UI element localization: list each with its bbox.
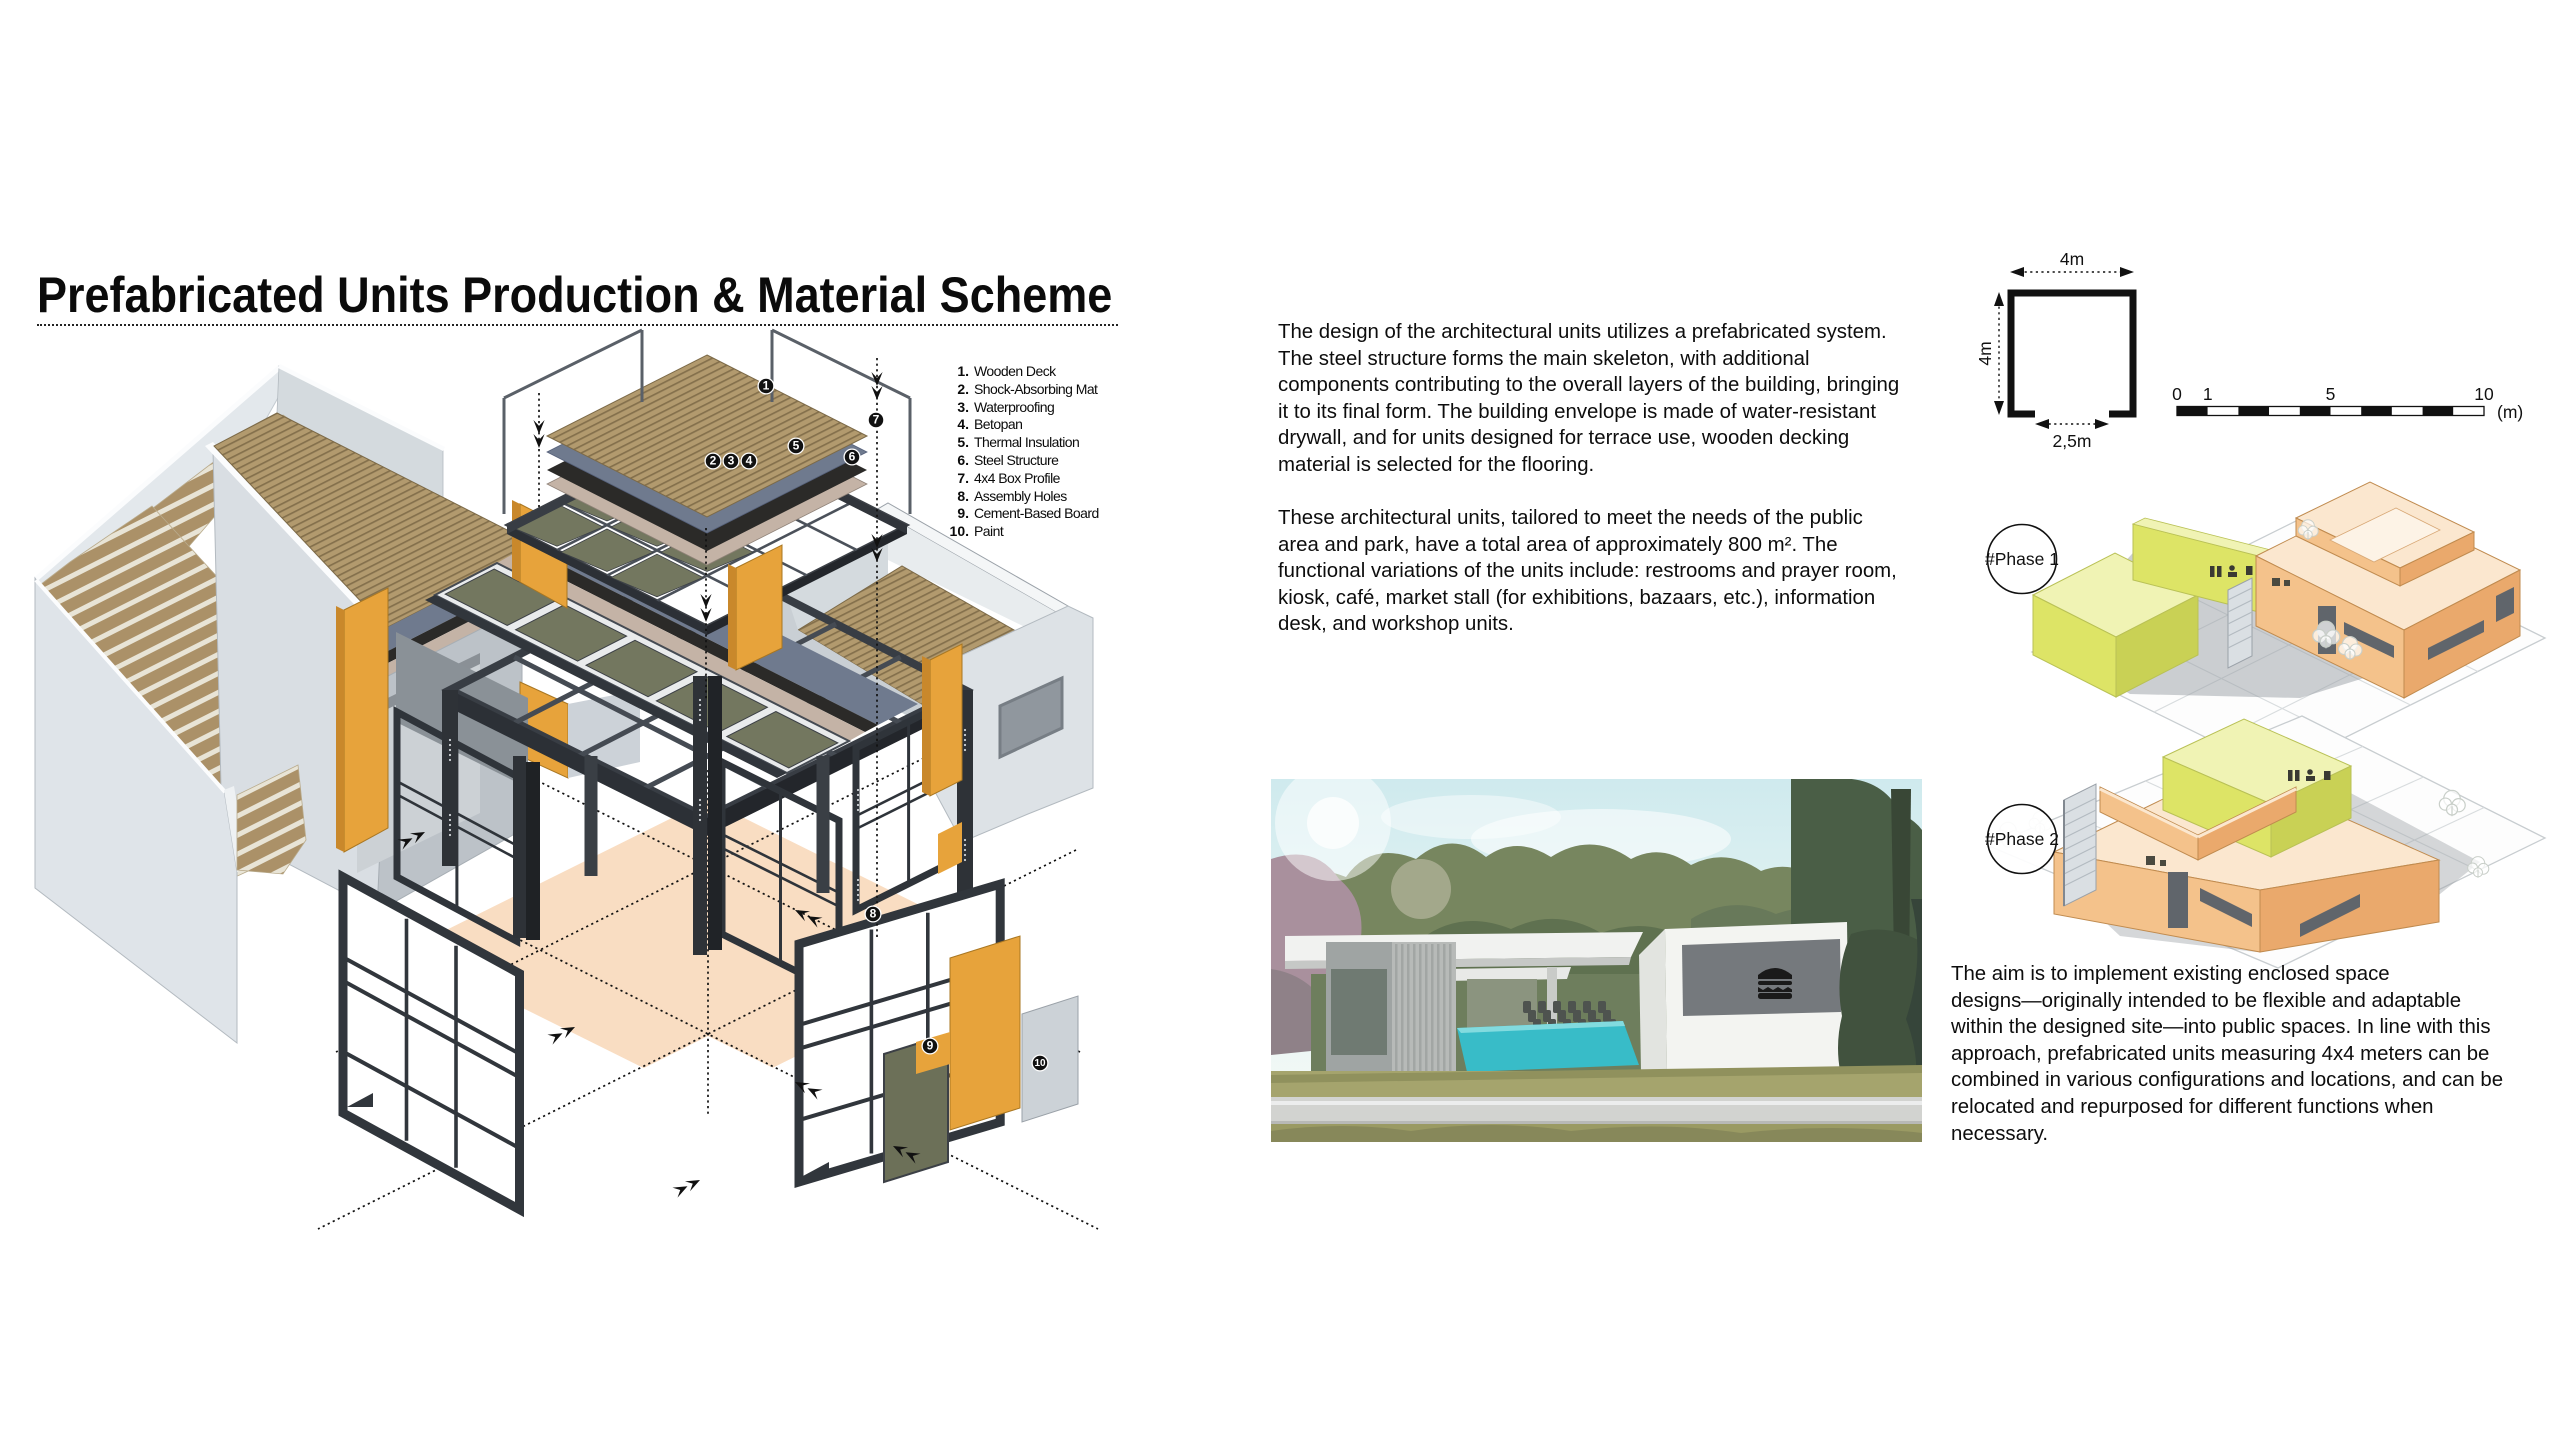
svg-text:#Phase 1: #Phase 1	[1985, 549, 2059, 569]
svg-text:1: 1	[2203, 384, 2213, 404]
svg-text:6: 6	[849, 450, 856, 464]
svg-text:8: 8	[870, 907, 877, 921]
svg-text:4: 4	[746, 454, 753, 468]
svg-text:7: 7	[873, 413, 880, 427]
svg-text:9: 9	[927, 1039, 934, 1053]
svg-text:5: 5	[793, 439, 800, 453]
svg-text:#Phase 2: #Phase 2	[1985, 829, 2059, 849]
svg-text:10: 10	[1034, 1058, 1046, 1069]
svg-text:2: 2	[710, 454, 717, 468]
svg-text:0: 0	[2172, 384, 2182, 404]
svg-text:5: 5	[2326, 384, 2336, 404]
svg-text:4m: 4m	[1975, 341, 1995, 365]
svg-text:2,5m: 2,5m	[2053, 431, 2092, 451]
svg-text:10: 10	[2474, 384, 2494, 404]
svg-text:(m): (m)	[2497, 402, 2523, 422]
svg-text:4m: 4m	[2060, 249, 2084, 269]
svg-text:3: 3	[728, 454, 735, 468]
svg-text:1: 1	[763, 379, 770, 393]
